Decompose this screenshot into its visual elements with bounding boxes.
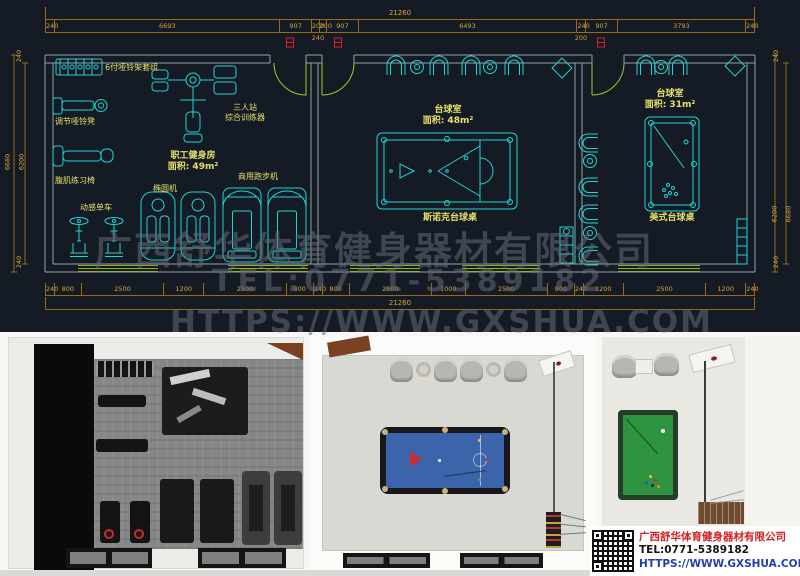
- armchair-3d: [460, 358, 483, 382]
- multi-trainer-3d: [162, 367, 248, 435]
- top-dimension-row: 240669390720020090764932409073793240: [45, 20, 755, 33]
- pool-room-wall: [745, 337, 800, 526]
- gym-floor: [94, 359, 303, 549]
- door-gym: [274, 63, 306, 95]
- side-table-3d: [486, 362, 501, 377]
- dimension-value: 2500: [623, 283, 705, 295]
- armchair-plan: [430, 56, 448, 75]
- left-dim-240-bottom: 240: [15, 256, 23, 268]
- armchair-plan: [387, 56, 405, 75]
- armchair-3d: [504, 358, 527, 382]
- company-url: HTTPS://WWW.GXSHUA.COM: [639, 558, 800, 571]
- top-total-dimension: 21260: [45, 7, 755, 20]
- armchair-plan: [505, 56, 523, 75]
- company-info-bar: 广西舒华体育健身器材有限公司 TEL:0771-5389182 HTTPS://…: [590, 526, 800, 576]
- treadmill-3d: [242, 471, 270, 545]
- armchair-plan: [669, 56, 687, 75]
- rack-3d: [96, 361, 154, 377]
- light-pole-3d: [553, 362, 555, 514]
- right-dim-6200: 6200: [770, 206, 778, 223]
- snooker-window-3d: [343, 553, 430, 568]
- side-table-plan: [655, 61, 668, 74]
- pocket: [442, 427, 448, 433]
- sub-dimension-240: 240: [305, 34, 331, 42]
- dimension-value: 240: [745, 20, 754, 32]
- label-trainer-line2: 综合训练器: [210, 113, 280, 123]
- screenshot-root: 21260 2406693907200200907649324090737932…: [0, 0, 800, 576]
- qr-code: [592, 530, 634, 572]
- gym-room-name: 职工健身房: [155, 151, 231, 162]
- render-gym-3d: [8, 337, 304, 569]
- left-dim-6200: 6200: [17, 154, 25, 171]
- cue-ball: [438, 459, 441, 462]
- lamp-detail: [711, 356, 718, 361]
- side-table-3d: [416, 362, 431, 377]
- dimension-value: 6693: [54, 20, 279, 32]
- gym-room-area: 面积: 49m²: [155, 162, 231, 173]
- red-marker-icon: [287, 38, 294, 47]
- dimension-value: 907: [279, 20, 310, 32]
- dimension-value: 240: [45, 20, 54, 32]
- trainer-highlight: [192, 388, 226, 405]
- label-ab-bench: 腹肌练习椅: [55, 176, 95, 186]
- spin-bike-3d: [130, 501, 150, 543]
- watermark-tel: TEL:0771-5389182: [212, 264, 606, 299]
- dimension-value: 3793: [617, 20, 745, 32]
- dimension-value: 240: [745, 283, 754, 295]
- company-tel: TEL:0771-5389182: [639, 544, 800, 557]
- diamond-plan: [725, 56, 745, 76]
- cue-ball: [661, 429, 665, 433]
- treadmill-belt: [281, 485, 295, 531]
- side-table-3d: [635, 359, 653, 374]
- watermark-url: HTTPS://WWW.GXSHUA.COM: [170, 304, 713, 340]
- trainer-highlight: [170, 369, 211, 385]
- label-adjustable-bench: 调节哑铃凳: [55, 117, 95, 127]
- red-marker-icon: [335, 38, 342, 47]
- qr-finder-pattern: [592, 530, 603, 541]
- adjustable-bench-plan: [53, 98, 107, 114]
- dimension-value: 2500: [81, 283, 163, 295]
- pocket: [382, 429, 388, 435]
- billiard1-area: 面积: 48m²: [412, 116, 484, 127]
- light-pole-3d: [704, 361, 706, 503]
- green-ball: [478, 478, 481, 481]
- label-elliptical: 椭圆机: [153, 184, 177, 194]
- treadmill-belt: [249, 485, 263, 531]
- ball: [649, 475, 652, 478]
- label-billiard-room2: 台球室 面积: 31m²: [634, 89, 706, 112]
- cue-rack-3d: [698, 502, 744, 524]
- pool-table-plan: [645, 117, 699, 211]
- left-dim-6680: 6680: [3, 154, 11, 171]
- company-info-text: 广西舒华体育健身器材有限公司 TEL:0771-5389182 HTTPS://…: [639, 531, 800, 570]
- ball: [651, 484, 654, 487]
- armchair-3d: [654, 353, 679, 376]
- dimension-value: 200: [311, 20, 319, 32]
- label-trainer-line1: 三人站: [210, 103, 280, 113]
- gym-window-3d: [198, 548, 286, 568]
- dimension-value: 240: [576, 20, 585, 32]
- left-dim-240-top: 240: [15, 50, 23, 62]
- billiard1-name: 台球室: [412, 105, 484, 116]
- armchair-plan: [462, 56, 480, 75]
- dimension-value: 6493: [358, 20, 577, 32]
- right-dim-240-bottom: 240: [772, 256, 780, 268]
- yellow-ball: [478, 439, 481, 442]
- ball: [645, 481, 648, 484]
- company-name: 广西舒华体育健身器材有限公司: [639, 531, 800, 544]
- elliptical-3d: [200, 479, 234, 543]
- door-billiard-2: [592, 63, 624, 95]
- armchair-3d: [612, 355, 637, 378]
- ceiling-lamp-3d: [688, 344, 735, 373]
- label-gym-room: 职工健身房 面积: 49m²: [155, 151, 231, 174]
- cue-stick: [626, 419, 658, 454]
- dimension-value: 200: [319, 20, 327, 32]
- blue-pool-table-3d: [380, 427, 510, 494]
- pocket: [502, 486, 508, 492]
- gym-door-3d: [267, 343, 303, 360]
- dimension-value: 1200: [705, 283, 745, 295]
- pocket: [442, 488, 448, 494]
- qr-finder-pattern: [592, 561, 603, 572]
- treadmill-3d: [274, 471, 302, 545]
- diamond-plan: [552, 58, 572, 78]
- side-table-plan: [411, 61, 424, 74]
- bench-3d: [98, 395, 146, 407]
- pocket: [502, 429, 508, 435]
- elliptical-3d: [160, 479, 194, 543]
- side-table-plan: [484, 61, 497, 74]
- dimension-value: 1200: [163, 283, 203, 295]
- dimension-value: 240: [45, 283, 54, 295]
- gym-window-3d: [66, 548, 152, 568]
- bike-wheel-red: [104, 529, 114, 539]
- side-table-plan: [584, 155, 597, 168]
- dumbbell-rack-plan: [56, 59, 102, 75]
- dimension-value: 907: [326, 20, 357, 32]
- ball: [657, 485, 660, 488]
- label-trainer: 三人站 综合训练器: [210, 103, 280, 123]
- right-dim-6680: 6680: [784, 206, 792, 223]
- billiard2-name: 台球室: [634, 89, 706, 100]
- bench-3d: [96, 439, 148, 452]
- rack-triangle-red: [410, 452, 422, 466]
- cue-stand-3d: [546, 512, 561, 548]
- render-snooker-3d: [310, 337, 596, 570]
- label-spin-bike: 动感单车: [80, 203, 112, 213]
- label-treadmill: 商用跑步机: [238, 172, 278, 182]
- spin-bike-3d: [100, 501, 120, 543]
- trainer-highlight: [176, 405, 202, 423]
- armchair-3d: [390, 358, 413, 382]
- dimension-value: 907: [585, 20, 616, 32]
- right-dim-240-top: 240: [772, 50, 780, 62]
- label-billiard-room1: 台球室 面积: 48m²: [412, 105, 484, 128]
- spin-bike-plan: [70, 218, 88, 257]
- gym-black-wall: [34, 344, 94, 570]
- snooker-window-3d: [460, 553, 543, 568]
- sub-dimension-200: 200: [568, 34, 594, 42]
- pocket: [382, 486, 388, 492]
- red-ball: [485, 458, 488, 461]
- red-marker-icon: [598, 38, 605, 47]
- cue-rack-plan: [737, 219, 747, 264]
- snooker-table-plan: [377, 133, 517, 209]
- bike-wheel-red: [134, 529, 144, 539]
- ball: [654, 479, 657, 482]
- label-dumbbell-rack: 6付哑铃架套组: [105, 63, 158, 73]
- render-pool-3d: [602, 337, 800, 526]
- billiard2-area: 面积: 31m²: [634, 100, 706, 111]
- fire-markers: [287, 38, 605, 47]
- green-pool-table-3d: [618, 410, 678, 500]
- door-billiard-1: [322, 63, 354, 95]
- dimension-value: 800: [54, 283, 81, 295]
- lamp-detail: [556, 361, 562, 366]
- armchair-3d: [434, 358, 457, 382]
- armchair-plan: [637, 56, 655, 75]
- qr-finder-pattern: [623, 530, 634, 541]
- ab-bench-plan: [53, 146, 113, 166]
